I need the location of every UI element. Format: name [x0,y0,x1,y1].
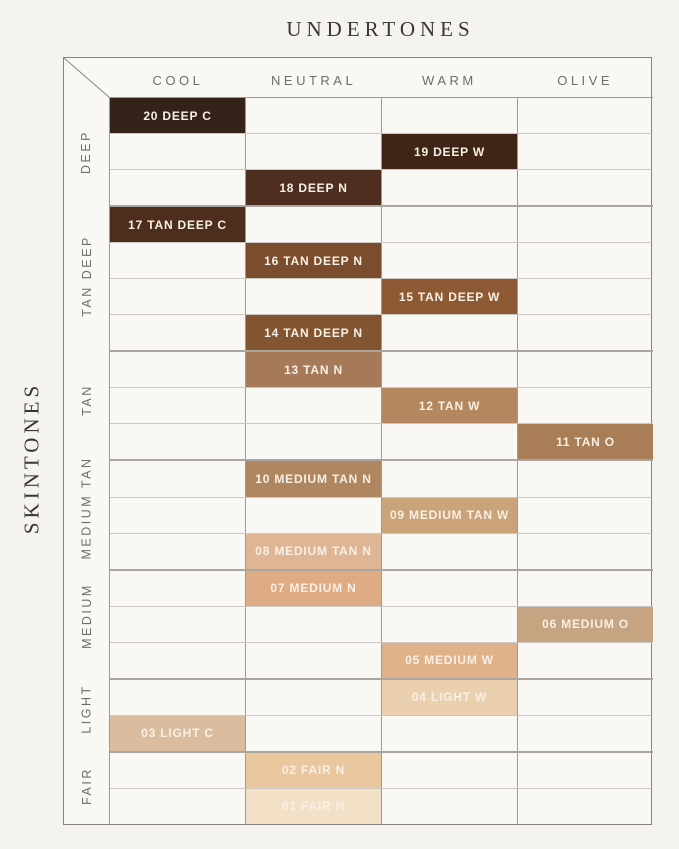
grid-row: 08 MEDIUM TAN N [110,533,653,569]
grid-row: 12 TAN W [110,387,653,423]
skintone-group: LIGHT [64,670,109,747]
skintone-group: TAN [64,346,109,454]
empty-cell [517,388,653,423]
shade-label: 20 DEEP C [143,109,211,123]
shade-swatch: 10 MEDIUM TAN N [245,461,381,496]
empty-cell [245,134,381,169]
empty-cell [110,534,245,569]
shade-swatch: 17 TAN DEEP C [110,207,245,242]
grid-row: 03 LIGHT C [110,715,653,751]
grid-row: 16 TAN DEEP N [110,242,653,278]
empty-cell [517,716,653,751]
undertone-header-row: COOLNEUTRALWARMOLIVE [110,58,653,98]
shade-label: 15 TAN DEEP W [399,290,500,304]
empty-cell [381,607,517,642]
skintone-group-label: DEEP [79,130,93,174]
shade-swatch: 03 LIGHT C [110,716,245,751]
grid-row: 02 FAIR N [110,751,653,788]
shade-label: 01 FAIR N [282,799,345,813]
grid-row: 18 DEEP N [110,169,653,205]
empty-cell [110,352,245,387]
empty-cell [110,315,245,350]
shade-label: 05 MEDIUM W [405,653,494,667]
shade-label: 10 MEDIUM TAN N [255,472,371,486]
empty-cell [245,680,381,715]
shade-swatch: 06 MEDIUM O [517,607,653,642]
empty-cell [381,170,517,205]
shade-table: COOLNEUTRALWARMOLIVE DEEPTAN DEEPTANMEDI… [63,57,652,825]
shade-swatch: 04 LIGHT W [381,680,517,715]
empty-cell [381,534,517,569]
empty-cell [517,534,653,569]
shade-swatch: 14 TAN DEEP N [245,315,381,350]
empty-cell [381,98,517,133]
empty-cell [245,98,381,133]
shade-swatch: 02 FAIR N [245,753,381,788]
empty-cell [381,716,517,751]
empty-cell [381,789,517,824]
shade-chart-page: UNDERTONES SKINTONES COOLNEUTRALWARMOLIV… [0,0,679,849]
empty-cell [110,498,245,533]
empty-cell [110,170,245,205]
grid-row: 09 MEDIUM TAN W [110,497,653,533]
empty-cell [517,498,653,533]
grid-row: 05 MEDIUM W [110,642,653,678]
shade-label: 17 TAN DEEP C [128,218,227,232]
empty-cell [517,243,653,278]
shade-label: 19 DEEP W [414,145,485,159]
empty-cell [110,753,245,788]
grid-row: 14 TAN DEEP N [110,314,653,350]
undertone-column-label: COOL [110,58,246,97]
empty-cell [517,461,653,496]
shade-label: 09 MEDIUM TAN W [390,508,509,522]
empty-cell [517,643,653,678]
shade-swatch: 01 FAIR N [245,789,381,824]
empty-cell [517,753,653,788]
grid-row: 01 FAIR N [110,788,653,824]
grid-row: 15 TAN DEEP W [110,278,653,314]
empty-cell [517,134,653,169]
empty-cell [381,753,517,788]
shade-swatch: 07 MEDIUM N [245,571,381,606]
shade-label: 08 MEDIUM TAN N [255,544,371,558]
grid-row: 04 LIGHT W [110,678,653,715]
grid-row: 07 MEDIUM N [110,569,653,606]
empty-cell [110,424,245,459]
empty-cell [517,789,653,824]
skintone-group-label: MEDIUM TAN [80,457,94,560]
shade-label: 04 LIGHT W [412,690,487,704]
undertone-column-label: OLIVE [517,58,653,97]
empty-cell [110,134,245,169]
shade-swatch: 11 TAN O [517,424,653,459]
shade-label: 14 TAN DEEP N [264,326,363,340]
empty-cell [245,607,381,642]
grid-row: 06 MEDIUM O [110,606,653,642]
shade-label: 02 FAIR N [282,763,345,777]
empty-cell [381,207,517,242]
undertone-column-label: WARM [382,58,518,97]
empty-cell [110,789,245,824]
shade-swatch: 08 MEDIUM TAN N [245,534,381,569]
shade-label: 06 MEDIUM O [542,617,629,631]
skintone-group-label: TAN DEEP [80,235,94,317]
empty-cell [517,571,653,606]
empty-cell [517,279,653,314]
shade-label: 07 MEDIUM N [270,581,356,595]
empty-cell [245,424,381,459]
shade-swatch: 20 DEEP C [110,98,245,133]
empty-cell [245,279,381,314]
skintone-group: FAIR [64,747,109,824]
shade-swatch: 15 TAN DEEP W [381,279,517,314]
shade-label: 16 TAN DEEP N [264,254,363,268]
shade-swatch: 05 MEDIUM W [381,643,517,678]
empty-cell [517,680,653,715]
empty-cell [517,170,653,205]
empty-cell [381,461,517,496]
empty-cell [110,571,245,606]
shade-label: 03 LIGHT C [141,726,214,740]
empty-cell [110,243,245,278]
shade-swatch: 12 TAN W [381,388,517,423]
empty-cell [110,279,245,314]
shade-label: 18 DEEP N [279,181,347,195]
empty-cell [517,98,653,133]
empty-cell [245,498,381,533]
empty-cell [517,352,653,387]
skintone-group-label: MEDIUM [80,583,94,649]
undertones-axis-title: UNDERTONES [109,17,652,42]
skintone-group-label: TAN [79,384,93,416]
grid-row: 13 TAN N [110,350,653,387]
empty-cell [517,207,653,242]
grid-row: 17 TAN DEEP C [110,205,653,242]
grid-row: 10 MEDIUM TAN N [110,459,653,496]
empty-cell [245,207,381,242]
empty-cell [110,643,245,678]
shade-swatch: 13 TAN N [245,352,381,387]
skintones-axis-title: SKINTONES [20,382,45,534]
skintone-group: DEEP [64,98,109,206]
skintone-group-label: FAIR [79,767,93,805]
empty-cell [110,607,245,642]
empty-cell [245,716,381,751]
shade-swatch: 19 DEEP W [381,134,517,169]
shade-label: 12 TAN W [419,399,481,413]
empty-cell [517,315,653,350]
empty-cell [381,315,517,350]
skintone-group-label: LIGHT [80,684,94,733]
grid-row: 20 DEEP C [110,98,653,133]
empty-cell [110,461,245,496]
empty-cell [381,352,517,387]
skintone-label-column: DEEPTAN DEEPTANMEDIUM TANMEDIUMLIGHTFAIR [64,98,110,824]
empty-cell [110,680,245,715]
shade-swatch: 16 TAN DEEP N [245,243,381,278]
empty-cell [110,388,245,423]
grid-row: 19 DEEP W [110,133,653,169]
shade-grid: 20 DEEP C19 DEEP W18 DEEP N17 TAN DEEP C… [110,98,653,824]
empty-cell [245,388,381,423]
empty-cell [381,243,517,278]
shade-label: 11 TAN O [556,435,615,449]
shade-swatch: 18 DEEP N [245,170,381,205]
empty-cell [381,571,517,606]
shade-label: 13 TAN N [284,363,343,377]
undertone-column-label: NEUTRAL [246,58,382,97]
corner-diagonal-line [64,58,110,98]
shade-swatch: 09 MEDIUM TAN W [381,498,517,533]
empty-cell [245,643,381,678]
skintone-group: MEDIUM [64,562,109,670]
grid-row: 11 TAN O [110,423,653,459]
empty-cell [381,424,517,459]
skintone-group: TAN DEEP [64,206,109,346]
skintone-group: MEDIUM TAN [64,454,109,562]
